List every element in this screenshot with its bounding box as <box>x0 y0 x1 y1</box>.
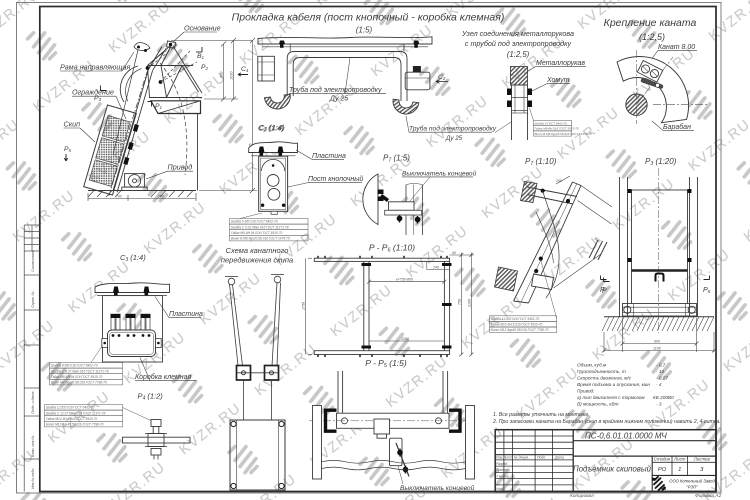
svg-text:- 10: - 10 <box>656 369 664 374</box>
svg-text:(1:2,5): (1:2,5) <box>639 32 665 42</box>
svg-text:Коробка клемная: Коробка клемная <box>135 373 191 381</box>
svg-text:C4: C4 <box>241 66 249 73</box>
svg-text:Шайба 12.65Г.016 ГОСТ 6402-70: Шайба 12.65Г.016 ГОСТ 6402-70 <box>46 406 94 410</box>
svg-text:- 4: - 4 <box>656 382 662 387</box>
svg-text:- 0,27: - 0,27 <box>656 376 668 381</box>
svg-text:C3 (1:4): C3 (1:4) <box>120 253 146 263</box>
svg-text:Болт М12-6gх40.58.016 ГОСТ 779: Болт М12-6gх40.58.016 ГОСТ 7798-70 <box>491 328 549 332</box>
svg-text:а) тип двигателя с тормозом: а) тип двигателя с тормозом <box>577 395 645 400</box>
svg-text:Объем, куб.м: Объем, куб.м <box>577 363 607 368</box>
svg-text:Согласовано: Согласовано <box>31 250 35 272</box>
svg-text:750: 750 <box>457 299 461 305</box>
svg-text:Изм.Лист: Изм.Лист <box>496 456 512 460</box>
svg-text:Ду 25: Ду 25 <box>329 96 348 103</box>
svg-text:Пластина: Пластина <box>312 153 346 160</box>
svg-text:КБ 200В0: КБ 200В0 <box>653 395 674 400</box>
svg-text:Гайка М6-6Н.016 ГОСТ 5915-70: Гайка М6-6Н.016 ГОСТ 5915-70 <box>535 127 579 131</box>
svg-text:1030: 1030 <box>229 71 233 80</box>
svg-text:передвижения скипа: передвижения скипа <box>221 256 293 265</box>
svg-text:№ докум.: № докум. <box>514 456 529 460</box>
svg-text:1200: 1200 <box>401 337 409 341</box>
svg-text:Ду 25: Ду 25 <box>445 135 463 142</box>
svg-text:Выключатель концевой: Выключатель концевой <box>400 484 475 492</box>
svg-text:P - P6 (1:10): P - P6 (1:10) <box>369 243 415 254</box>
svg-text:1100: 1100 <box>653 346 661 350</box>
svg-text:Инв.№ подл.: Инв.№ подл. <box>31 468 35 489</box>
svg-text:Дата: Дата <box>554 456 564 460</box>
svg-text:Копировал: Копировал <box>570 493 594 499</box>
svg-text:200: 200 <box>555 179 562 183</box>
svg-text:Привод: Привод <box>168 163 193 172</box>
svg-text:Гайка М8-6Н.04.016 ГОСТ 5915-7: Гайка М8-6Н.04.016 ГОСТ 5915-70 <box>51 375 102 379</box>
svg-text:Т.контр.: Т.контр. <box>496 474 510 478</box>
svg-text:Труба под электропроводку: Труба под электропроводку <box>409 125 497 133</box>
svg-text:900: 900 <box>219 71 223 78</box>
svg-text:Подп. и дата: Подп. и дата <box>31 392 35 415</box>
svg-text:Гайка М12-6Н.5.016 ГОСТ 5915-7: Гайка М12-6Н.5.016 ГОСТ 5915-70 <box>491 323 542 327</box>
svg-text:P4 (1:2): P4 (1:2) <box>138 392 164 402</box>
svg-text:Болт М8-6gх30.58.016 ГОСТ 7798: Болт М8-6gх30.58.016 ГОСТ 7798-70 <box>51 381 107 385</box>
svg-text:(1:2,5): (1:2,5) <box>507 50 530 59</box>
svg-text:Гайка М5-6Н.04.016 ГОСТ 5915-7: Гайка М5-6Н.04.016 ГОСТ 5915-70 <box>231 231 282 235</box>
svg-text:Подп.: Подп. <box>537 456 546 460</box>
svg-text:Шайба 6 ГОСТ 6402-70: Шайба 6 ГОСТ 6402-70 <box>535 121 568 125</box>
svg-text:P5: P5 <box>64 146 72 153</box>
svg-text:Шайба С 8.37.08кп.016 ГОСТ 113: Шайба С 8.37.08кп.016 ГОСТ 11371-78 <box>51 369 109 373</box>
svg-text:1: 1 <box>678 467 681 473</box>
svg-text:Время подъема и опускания, мин: Время подъема и опускания, мин <box>577 382 650 387</box>
svg-text:2. При запасовки каната на Бар: 2. При запасовки каната на Барабан (скип… <box>492 418 721 425</box>
svg-text:900: 900 <box>654 339 660 343</box>
svg-text:Шайба 8.65Г.016 ГОСТ 6402-70: Шайба 8.65Г.016 ГОСТ 6402-70 <box>51 364 98 368</box>
svg-text:2180: 2180 <box>467 299 471 308</box>
svg-text:РО: РО <box>658 467 667 473</box>
svg-text:Канат 8.00: Канат 8.00 <box>658 44 695 51</box>
svg-text:Шайба 5.65Г.016 ГОСТ 6402-70: Шайба 5.65Г.016 ГОСТ 6402-70 <box>231 220 278 224</box>
svg-text:"РЭП": "РЭП" <box>686 485 698 490</box>
svg-text:ООО Котельный Завод: ООО Котельный Завод <box>669 479 715 484</box>
svg-text:Выключатель концевой: Выключатель концевой <box>402 169 477 177</box>
svg-text:Разраб.: Разраб. <box>496 462 508 466</box>
svg-text:Взам. инв.№: Взам. инв.№ <box>31 436 35 457</box>
svg-text:Основание: Основание <box>184 24 221 33</box>
svg-text:1. Все размеры уточнить на мон: 1. Все размеры уточнить на монтаже. <box>493 412 590 418</box>
svg-text:с трубой под электропроводку: с трубой под электропроводку <box>465 39 572 48</box>
svg-text:Ограждение: Ограждение <box>72 88 114 97</box>
svg-text:Шайба 12.65Г.016 ГОСТ 6402-70: Шайба 12.65Г.016 ГОСТ 6402-70 <box>491 317 539 321</box>
svg-text:Крепление каната: Крепление каната <box>604 17 697 29</box>
svg-text:- 3: - 3 <box>656 402 662 407</box>
svg-text:240: 240 <box>432 265 439 269</box>
svg-text:1750: 1750 <box>302 302 306 310</box>
svg-text:500: 500 <box>158 195 164 199</box>
svg-text:Лист: Лист <box>673 457 686 462</box>
svg-text:- 0,7: - 0,7 <box>656 363 666 368</box>
svg-text:Скип: Скип <box>64 119 81 128</box>
svg-text:Труба под электропроводку: Труба под электропроводку <box>289 86 382 94</box>
svg-text:P3 (1:20): P3 (1:20) <box>645 157 677 167</box>
svg-text:Барабан: Барабан <box>663 123 691 131</box>
svg-text:ПС-0,6.01.01.0000 МЧ: ПС-0,6.01.01.0000 МЧ <box>585 432 667 441</box>
svg-text:P7 (1:10): P7 (1:10) <box>525 157 557 167</box>
svg-text:Грузоподъемность, т: Грузоподъемность, т <box>577 369 626 374</box>
svg-text:P2: P2 <box>201 64 209 71</box>
svg-text:Болт М12-6gх45.58.016 ГОСТ 779: Болт М12-6gх45.58.016 ГОСТ 7798-70 <box>46 423 104 427</box>
svg-text:90: 90 <box>452 251 456 255</box>
svg-text:Винт В М6-6gх25.58.016 ГОСТ 17: Винт В М6-6gх25.58.016 ГОСТ 17475-70 <box>535 132 592 136</box>
svg-text:Утв.: Утв. <box>496 487 504 491</box>
svg-text:Гайка М12-6Н.5.016 ГОСТ 5915-7: Гайка М12-6Н.5.016 ГОСТ 5915-70 <box>46 417 97 421</box>
svg-text:Пластина: Пластина <box>169 311 203 318</box>
svg-text:Формат А2: Формат А2 <box>695 493 722 499</box>
svg-text:Хомут: Хомут <box>546 77 570 84</box>
svg-text:Винт В М5-6gх20.58.016 ГОСТ 14: Винт В М5-6gх20.58.016 ГОСТ 1476-75 <box>231 237 290 241</box>
svg-text:P - P5 (1:5): P - P5 (1:5) <box>365 358 407 369</box>
svg-text:В) мощность, кВт: В) мощность, кВт <box>577 402 619 407</box>
svg-text:Узел соединения металлорукова: Узел соединения металлорукова <box>461 29 574 38</box>
svg-text:P1: P1 <box>155 103 163 110</box>
svg-text:Металлорукав: Металлорукав <box>536 60 585 67</box>
svg-text:Схема канатного: Схема канатного <box>226 246 289 255</box>
svg-text:Скорость движения, м/с: Скорость движения, м/с <box>577 376 632 381</box>
svg-text:Листов: Листов <box>693 457 711 462</box>
svg-text:Прокладка кабеля (пост кнопочн: Прокладка кабеля (пост кнопочный - короб… <box>232 12 505 24</box>
svg-text:к=750-800: к=750-800 <box>396 277 413 281</box>
svg-text:C2 (1:4): C2 (1:4) <box>258 124 284 134</box>
svg-text:Шайба С 5.01.08кп.016 ГОСТ 113: Шайба С 5.01.08кп.016 ГОСТ 11371-78 <box>231 225 289 229</box>
svg-text:Стадия: Стадия <box>654 457 671 462</box>
svg-text:Рама направляющая: Рама направляющая <box>60 62 131 71</box>
svg-text:Шайба С 12.37.08кп.016 ГОСТ 11: Шайба С 12.37.08кп.016 ГОСТ 11371-78 <box>46 411 105 415</box>
svg-text:700: 700 <box>116 195 122 199</box>
svg-text:Провер.: Провер. <box>496 468 509 472</box>
svg-text:В1: В1 <box>197 53 205 60</box>
svg-text:(1:5): (1:5) <box>356 26 373 35</box>
svg-text:Подъемник скиповый: Подъемник скиповый <box>573 465 652 474</box>
svg-text:Привод:: Привод: <box>577 389 595 394</box>
svg-text:P7 (1:5): P7 (1:5) <box>383 154 410 164</box>
svg-text:Справ. №: Справ. № <box>31 292 35 308</box>
svg-text:Пост кнопочный: Пост кнопочный <box>308 175 363 183</box>
svg-text:P: P <box>602 288 607 295</box>
svg-text:P3: P3 <box>94 95 102 102</box>
